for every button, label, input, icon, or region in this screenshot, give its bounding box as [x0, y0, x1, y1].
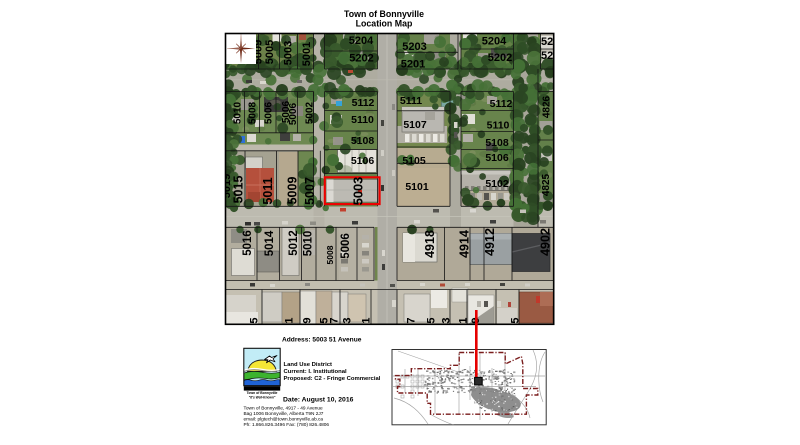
svg-text:5202: 5202	[349, 53, 373, 65]
svg-text:5108: 5108	[485, 137, 509, 149]
svg-text:1: 1	[458, 317, 470, 323]
svg-text:5006: 5006	[340, 233, 352, 259]
svg-text:4912: 4912	[483, 228, 497, 256]
svg-text:“It’s Well-Known”: “It’s Well-Known”	[249, 395, 276, 399]
svg-text:5008: 5008	[325, 245, 335, 264]
svg-text:5016: 5016	[242, 230, 254, 256]
svg-text:4902: 4902	[539, 228, 553, 256]
svg-text:5002: 5002	[304, 101, 315, 124]
svg-text:5101: 5101	[405, 181, 429, 193]
svg-text:5009: 5009	[286, 177, 300, 205]
svg-text:Land Use District: Land Use District	[284, 362, 332, 368]
svg-text:3: 3	[441, 317, 453, 323]
svg-text:5102: 5102	[485, 178, 509, 190]
svg-text:7: 7	[406, 317, 418, 323]
svg-text:5105: 5105	[402, 155, 426, 167]
svg-text:5204: 5204	[349, 35, 374, 47]
svg-text:5111: 5111	[400, 95, 422, 107]
svg-text:5110: 5110	[351, 114, 374, 126]
svg-text:7: 7	[329, 317, 341, 323]
svg-text:5006: 5006	[263, 101, 274, 124]
svg-text:5006: 5006	[288, 102, 299, 125]
svg-text:5015: 5015	[232, 176, 246, 204]
svg-text:5: 5	[510, 317, 522, 323]
svg-text:4825: 4825	[541, 173, 552, 196]
svg-text:5011: 5011	[261, 177, 275, 204]
svg-text:Bag 1006 Bonnyville, Alberta T: Bag 1006 Bonnyville, Alberta T9N 2J7	[244, 411, 324, 417]
svg-text:4918: 4918	[423, 230, 437, 258]
svg-text:5112: 5112	[352, 97, 375, 109]
svg-text:Town of Bonnyville: Town of Bonnyville	[344, 9, 424, 19]
svg-text:5007: 5007	[303, 177, 317, 205]
svg-text:5201: 5201	[401, 59, 425, 71]
svg-text:4914: 4914	[458, 230, 472, 258]
svg-text:Current: I. Institutional: Current: I. Institutional	[284, 369, 348, 375]
svg-text:5110: 5110	[487, 120, 510, 132]
svg-text:5106: 5106	[485, 152, 509, 164]
svg-text:5010: 5010	[232, 101, 243, 124]
svg-text:5003: 5003	[283, 41, 295, 65]
svg-text:1: 1	[361, 317, 373, 323]
svg-text:5202: 5202	[488, 52, 512, 64]
svg-text:5008: 5008	[247, 101, 258, 124]
svg-text:5108: 5108	[351, 135, 375, 147]
svg-text:5107: 5107	[403, 119, 427, 131]
svg-text:Date: August 10, 2016: Date: August 10, 2016	[283, 397, 354, 404]
svg-text:5005: 5005	[264, 40, 276, 64]
svg-text:5003: 5003	[350, 177, 365, 205]
svg-text:Address: 5003 51 Avenue: Address: 5003 51 Avenue	[282, 337, 362, 344]
svg-text:email: plgtech@town.bonnyville: email: plgtech@town.bonnyville.ab.ca	[244, 417, 324, 423]
svg-text:5: 5	[249, 317, 261, 323]
svg-text:Ph: 1.866.826.3496 Fax: (780): Ph: 1.866.826.3496 Fax: (780) 826.4806	[244, 422, 330, 428]
svg-text:5012: 5012	[288, 230, 300, 256]
svg-text:5: 5	[426, 317, 438, 323]
svg-text:5001: 5001	[301, 42, 313, 66]
svg-text:5203: 5203	[402, 41, 426, 53]
svg-text:1: 1	[284, 317, 296, 323]
svg-text:Town of Bonnyville, 4917 - 49: Town of Bonnyville, 4917 - 49 Avenue	[244, 406, 323, 412]
svg-text:4826: 4826	[541, 95, 552, 118]
svg-text:5014: 5014	[264, 230, 276, 256]
svg-text:5010: 5010	[302, 231, 314, 257]
svg-text:5106: 5106	[351, 155, 375, 167]
svg-text:Location Map: Location Map	[356, 19, 413, 29]
svg-text:5204: 5204	[482, 36, 507, 48]
svg-text:3: 3	[342, 317, 354, 323]
svg-text:5112: 5112	[490, 98, 513, 110]
svg-text:Proposed: C2 - Fringe Commerci: Proposed: C2 - Fringe Commercial	[284, 376, 381, 382]
svg-text:9: 9	[302, 317, 314, 323]
